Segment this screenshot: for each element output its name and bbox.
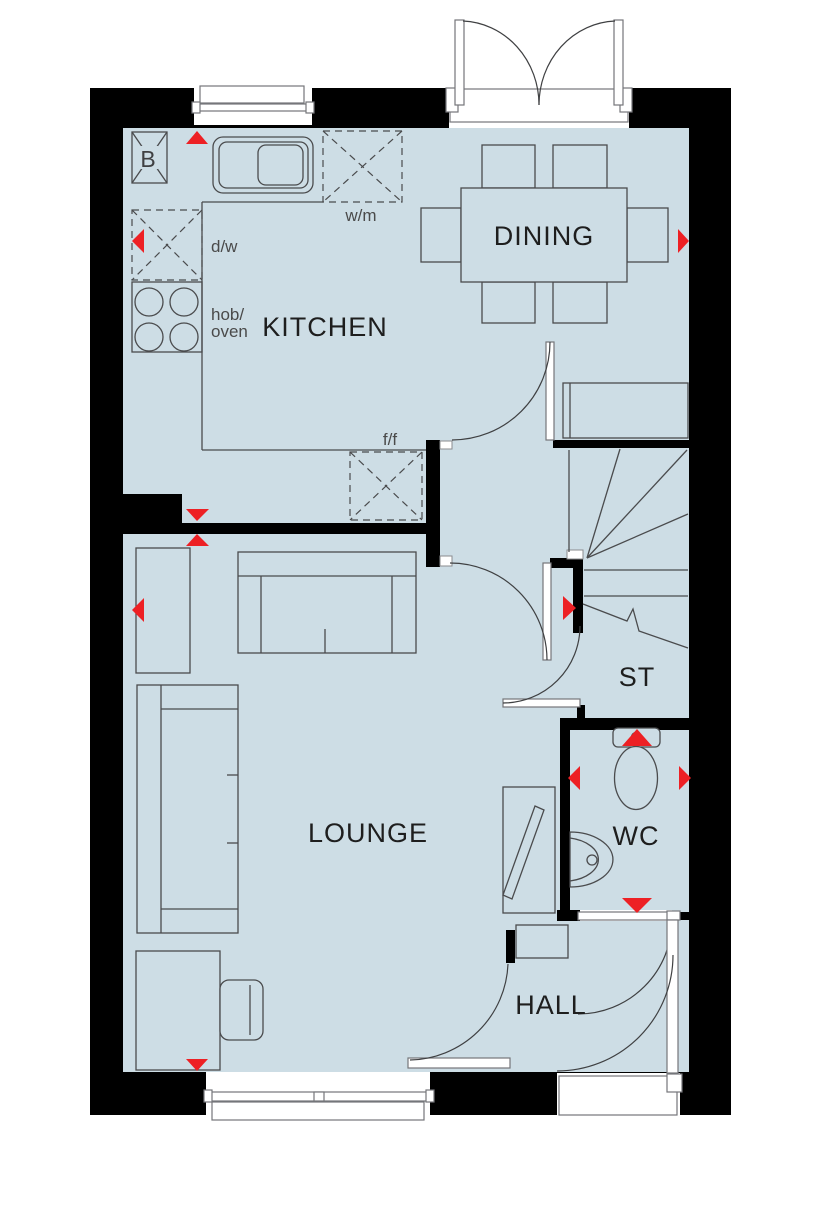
sofa-two-seater — [238, 552, 416, 653]
wall-wc-left — [560, 718, 570, 910]
table-chair — [220, 980, 263, 1040]
dining-chair — [421, 208, 461, 262]
hob-oven-label-line2: oven — [211, 322, 248, 341]
french-door-leaf-left — [455, 20, 464, 105]
dining-chair — [482, 282, 535, 323]
stair-landing — [563, 383, 688, 438]
hall-cupboard — [516, 925, 568, 958]
lounge-window — [204, 1072, 434, 1120]
french-door-leaf-right — [614, 20, 623, 105]
wall-kitchen-corner — [426, 440, 440, 567]
kitchen-label: KITCHEN — [262, 312, 388, 342]
wall-stub-stair-side — [573, 558, 583, 633]
wall-right — [689, 88, 731, 1115]
wc-door-leaf — [578, 912, 672, 920]
fridge-freezer-label: f/f — [383, 430, 397, 449]
wall-stair-top — [553, 440, 690, 448]
dining-chair — [482, 145, 535, 188]
wc-label: WC — [613, 821, 660, 851]
floor-plan-page: B w/m d/w hob/ ove — [0, 0, 823, 1207]
dishwasher-label: d/w — [211, 237, 238, 256]
stair-hall-door-leaf — [543, 563, 551, 660]
dining-chair — [553, 282, 607, 323]
wall-top — [90, 88, 731, 128]
kitchen-door-leaf — [546, 342, 554, 440]
wall-stub-wc-bottom-left — [557, 910, 580, 921]
floor-plan-canvas: B w/m d/w hob/ ove — [0, 0, 823, 1207]
front-door-leaf — [667, 920, 678, 1073]
lounge-hall-door-leaf — [408, 1058, 510, 1068]
front-door-jamb — [667, 911, 680, 920]
side-unit — [136, 548, 190, 673]
wall-left — [90, 88, 123, 1115]
sofa-three-seater — [137, 685, 238, 933]
kitchen-window — [192, 85, 314, 125]
dining-chair — [553, 145, 607, 188]
boiler-label: B — [140, 146, 155, 172]
wall-stub-lounge-hall — [506, 930, 515, 963]
stairs-label: ST — [619, 662, 656, 692]
dining-label: DINING — [494, 221, 595, 251]
french-doors — [446, 20, 632, 128]
tv-unit — [503, 787, 555, 913]
front-door-hinge — [667, 1074, 682, 1092]
hall-label: HALL — [515, 990, 587, 1020]
dining-chair — [627, 208, 668, 262]
lounge-label: LOUNGE — [308, 818, 428, 848]
wall-kitchen-lounge-divider — [123, 523, 427, 534]
washing-machine-label: w/m — [344, 206, 376, 225]
st-door-leaf — [503, 699, 580, 707]
